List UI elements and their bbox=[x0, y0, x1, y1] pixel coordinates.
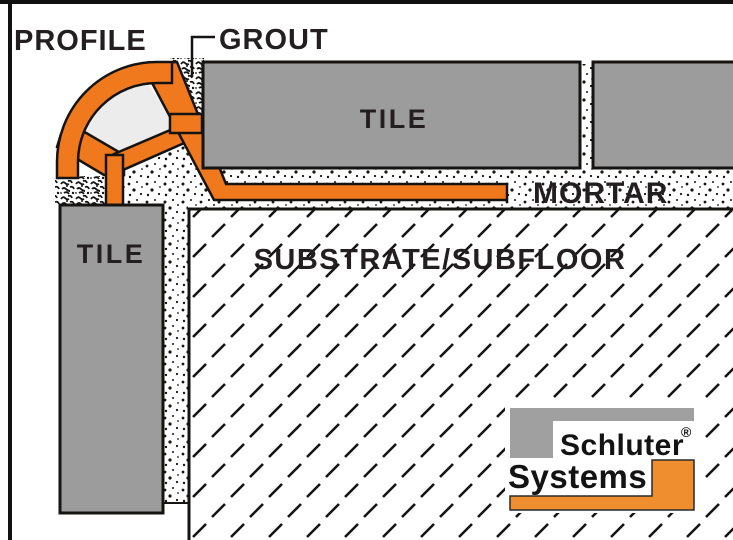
tile-wall-label: TILE bbox=[77, 239, 146, 269]
tile-top-right bbox=[593, 62, 733, 168]
diagram-svg: PROFILE GROUT TILE TILE MORTAR SUBSTRATE… bbox=[0, 0, 733, 540]
tile-top-label: TILE bbox=[360, 104, 429, 134]
mortar-strip-wall bbox=[163, 180, 188, 503]
substrate-label: SUBSTRATE/SUBFLOOR bbox=[254, 244, 627, 276]
mortar-label: MORTAR bbox=[533, 177, 668, 210]
profile-label: PROFILE bbox=[14, 25, 147, 57]
tile-joint bbox=[582, 64, 592, 166]
diagram-stage: PROFILE GROUT TILE TILE MORTAR SUBSTRATE… bbox=[0, 0, 733, 540]
grout-label: GROUT bbox=[219, 24, 329, 56]
frame-left-border bbox=[8, 0, 12, 540]
profile-joint-arm bbox=[170, 114, 202, 133]
frame-top-border bbox=[0, 0, 733, 4]
registered-trademark-icon: ® bbox=[681, 424, 692, 440]
profile-anchor-stub bbox=[106, 155, 123, 205]
logo-word-systems: Systems bbox=[508, 458, 647, 495]
schluter-logo: Schluter ® Systems bbox=[505, 399, 704, 513]
